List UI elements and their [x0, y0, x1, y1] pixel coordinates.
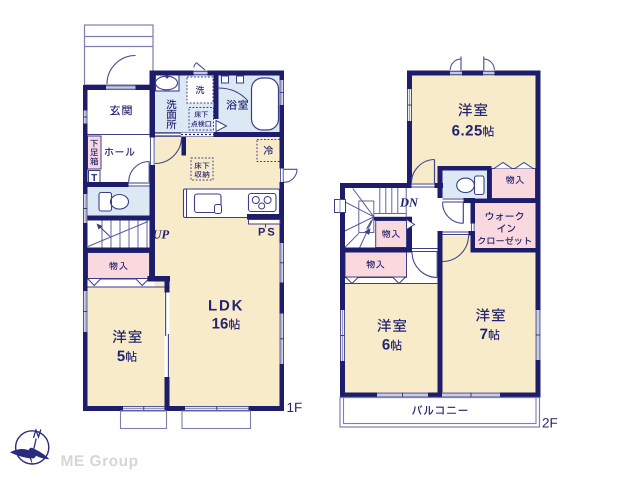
svg-text:LDK: LDK [208, 298, 244, 315]
svg-text:16: 16 [212, 316, 229, 333]
svg-text:UP: UP [153, 228, 170, 242]
svg-text:6.25: 6.25 [452, 123, 483, 140]
svg-text:5: 5 [117, 348, 125, 365]
svg-text:1F: 1F [287, 400, 303, 415]
svg-text:6: 6 [382, 337, 390, 354]
svg-text:2F: 2F [542, 416, 558, 431]
svg-text:ME Group: ME Group [61, 453, 139, 470]
svg-text:7: 7 [480, 326, 488, 343]
svg-text:PS: PS [258, 227, 277, 239]
svg-text:DN: DN [399, 196, 419, 210]
